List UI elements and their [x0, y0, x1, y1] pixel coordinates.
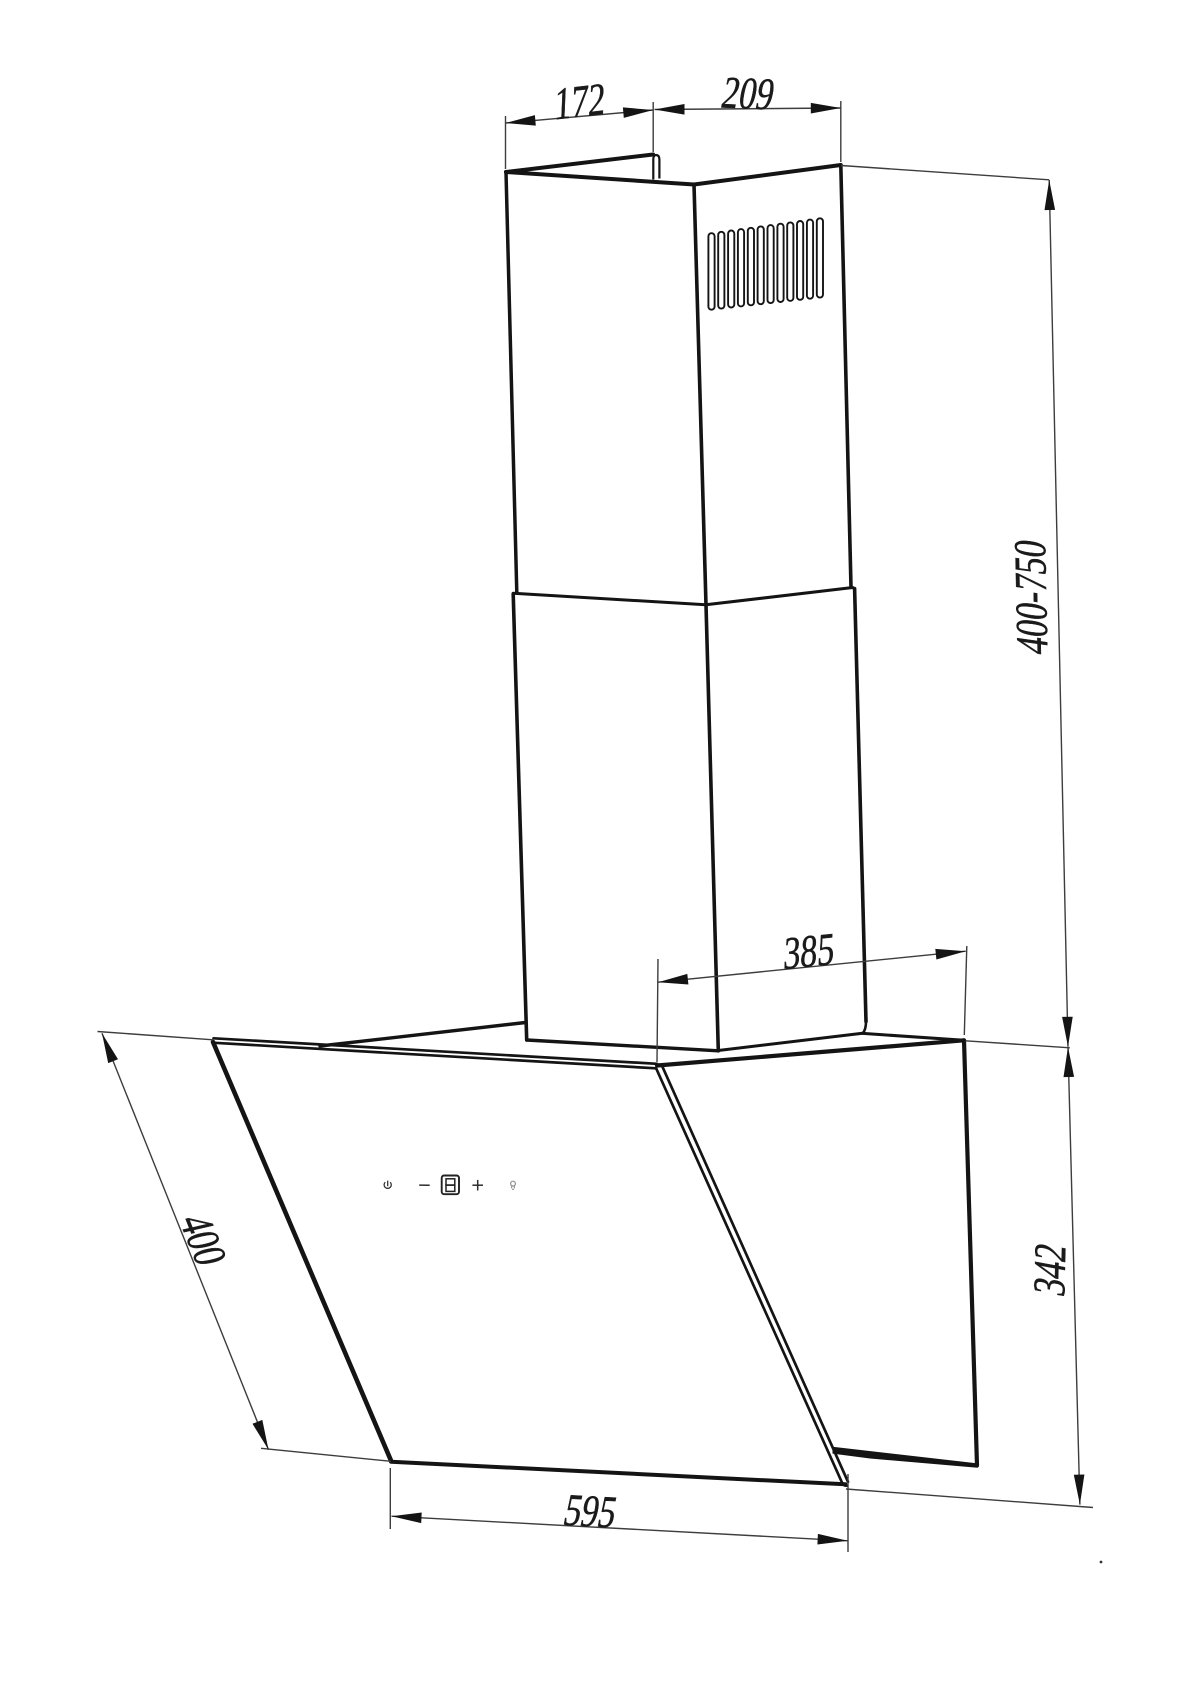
svg-text:595: 595 [560, 1485, 622, 1538]
svg-text:400-750: 400-750 [1005, 537, 1058, 658]
svg-text:385: 385 [782, 923, 836, 979]
svg-text:172: 172 [553, 73, 606, 130]
svg-text:400: 400 [169, 1211, 238, 1270]
svg-text:342: 342 [1024, 1239, 1076, 1299]
svg-text:209: 209 [718, 67, 779, 119]
